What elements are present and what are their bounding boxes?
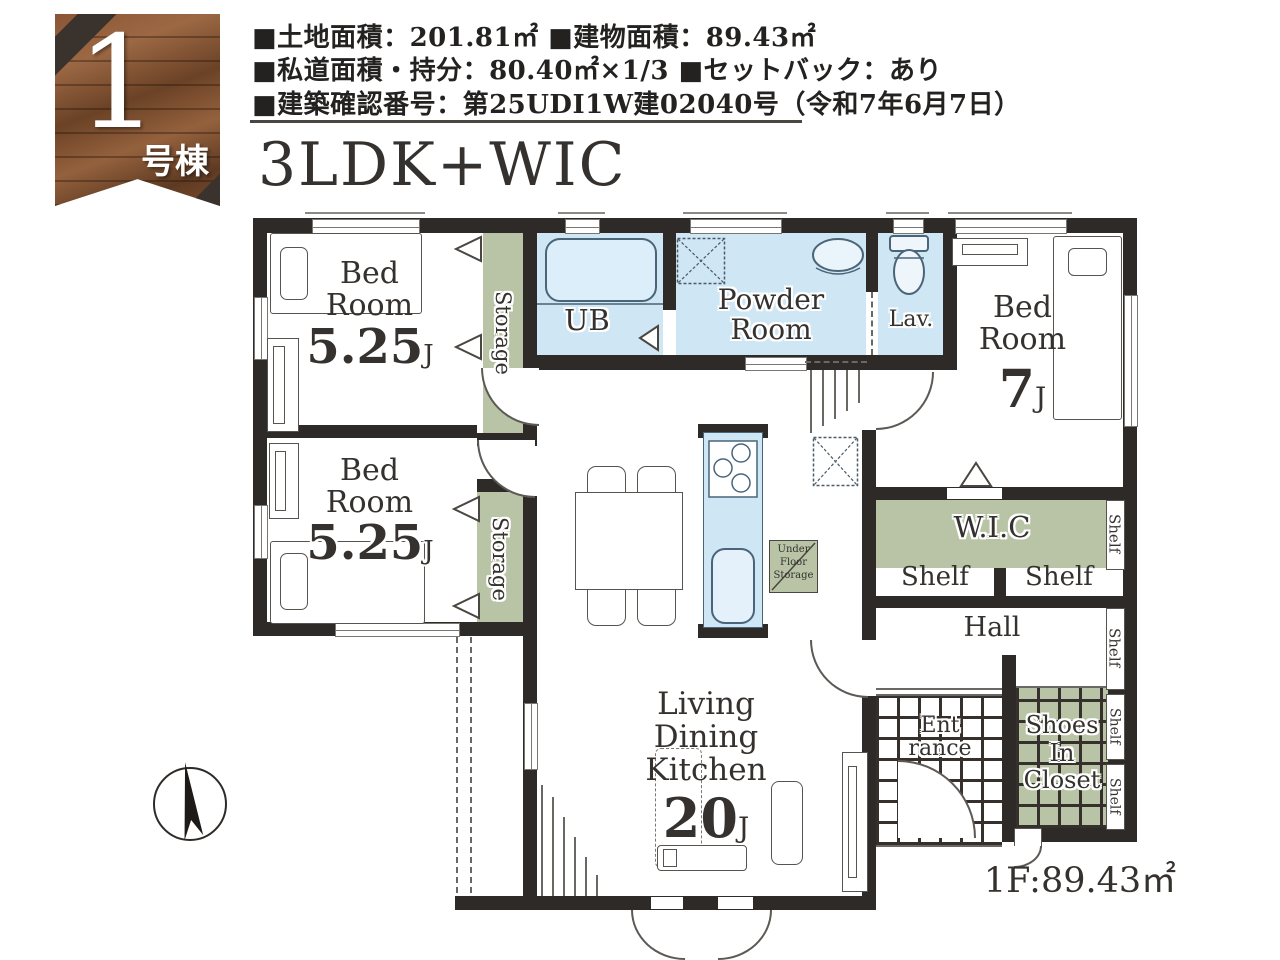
patio-door-arc (718, 910, 772, 960)
pillow (1068, 248, 1107, 276)
counter-shelf-detail (962, 244, 1018, 255)
confirmation-number-line: ■建築確認番号：第25UDI1W建02040号（令和7年6月7日） (252, 89, 1021, 122)
door-swing-arc (810, 640, 868, 698)
label-line: Closet (1020, 767, 1104, 795)
window-sill (305, 212, 425, 214)
room-label-entrance: Ent rance (898, 714, 982, 761)
shelf-label: Shelf (1000, 564, 1118, 592)
label-line: Under (769, 543, 818, 556)
window (254, 505, 268, 559)
room-label-bedroom2: Bed Room (322, 455, 417, 519)
room-label-hall: Hall (948, 614, 1036, 643)
kitchen-sink (711, 548, 755, 624)
window (565, 219, 600, 234)
label-line: rance (898, 737, 982, 760)
patio-door-arc (631, 910, 685, 960)
hatch-line (585, 857, 587, 896)
bathtub (545, 238, 657, 302)
door-swing-arc (876, 372, 934, 430)
window (335, 623, 460, 637)
room-size: 5.25 (306, 515, 423, 571)
room-size-ldk: 20J (630, 790, 782, 847)
hatch-line (552, 797, 554, 896)
room-label-ldk: Living Dining Kitchen (630, 688, 782, 787)
hatch-line (822, 370, 824, 426)
room-size: 20 (663, 786, 738, 850)
door-opening (947, 488, 1002, 499)
hatch-line (846, 370, 848, 411)
window-sill (948, 212, 1072, 214)
sliding-door-track (871, 292, 873, 355)
hatch-line (563, 817, 565, 896)
door-opening (718, 897, 753, 909)
desk-detail (275, 451, 286, 511)
sliding-door (745, 357, 807, 371)
unit-number-badge: 1 号棟 (55, 14, 220, 206)
room-size-unit: J (423, 536, 433, 566)
closet-edge-line (1016, 686, 1108, 688)
bench-detail (663, 849, 677, 867)
label-line: Floor (769, 556, 818, 569)
room-label-shoes-closet: Shoes In Closet (1020, 712, 1104, 795)
hatch-line (596, 875, 598, 896)
sliding-door-track (805, 361, 867, 363)
header-underline (250, 120, 802, 123)
room-size-unit: J (423, 340, 433, 370)
road-area-line: ■私道面積・持分：80.40㎡×1/3 ■セットバック：あり (252, 55, 1021, 88)
room-label-bedroom3: Bed Room (975, 292, 1070, 356)
entrance-step-line (876, 688, 1002, 690)
room-size: 5.25 (306, 319, 423, 375)
room-label-ub: UB (557, 305, 617, 336)
folding-door-icon (638, 324, 660, 352)
room-label-storage2: Storage (477, 500, 523, 618)
room-size-unit: J (1035, 381, 1046, 414)
hatch-line (834, 370, 836, 419)
badge-number: 1 (77, 20, 158, 148)
setback-line (456, 637, 458, 893)
shelf-label: Shelf (876, 564, 994, 592)
window-sill (683, 212, 787, 214)
room-size-bedroom1: 5.25J (280, 322, 460, 373)
room-size-bedroom3: 7J (975, 362, 1070, 417)
hatch-line (574, 837, 576, 896)
refrigerator-space-icon (812, 436, 859, 487)
room-label-bedroom1: Bed Room (322, 258, 417, 322)
room-label-powder-room: Powder Room (691, 285, 851, 344)
setback-line (470, 637, 472, 893)
property-info: ■土地面積：201.81㎡ ■建物面積：89.43㎡ ■私道面積・持分：80.4… (252, 22, 1021, 122)
room-size-bedroom2: 5.25J (280, 518, 460, 569)
room-label-storage1: Storage (483, 248, 523, 418)
room-label-wic: W.I.C (938, 512, 1046, 543)
layout-title: 3LDK+WIC (258, 130, 627, 200)
window (254, 297, 268, 360)
hatch-line (810, 370, 812, 433)
floor-plan-page: 1 号棟 ■土地面積：201.81㎡ ■建物面積：89.43㎡ ■私道面積・持分… (0, 0, 1280, 960)
window (524, 703, 538, 770)
room-size: 7 (999, 359, 1035, 420)
window (1124, 295, 1138, 427)
wall-segment (523, 218, 537, 368)
shelf-label: Shelf (1106, 608, 1123, 688)
wall-segment (876, 487, 1137, 500)
window-sill (558, 212, 605, 214)
porch-edge-line (876, 845, 1002, 847)
wall-segment (663, 232, 676, 310)
room-size-unit: J (738, 811, 749, 844)
label-line: Ent (898, 714, 982, 737)
label-line: In (1020, 740, 1104, 768)
compass-icon (150, 754, 230, 858)
pillow (280, 247, 308, 300)
badge-label: 号棟 (141, 134, 209, 183)
window (312, 219, 420, 234)
sink-icon (810, 236, 866, 278)
hatch-line (858, 370, 860, 403)
wall-segment (862, 430, 876, 640)
shelf-label: Shelf (1106, 500, 1123, 568)
window-sill (886, 212, 929, 214)
window (893, 219, 924, 234)
hatch-line (541, 785, 543, 896)
shelf-label: Shelf (1106, 694, 1123, 758)
wall-segment (866, 232, 878, 292)
under-floor-storage-label: Under Floor Storage (769, 543, 818, 582)
room-label-lavatory: Lav. (880, 308, 942, 331)
stove-icon (708, 440, 758, 498)
window (955, 219, 1067, 234)
label-line: Shoes (1020, 712, 1104, 740)
dining-table (575, 492, 683, 590)
entrance-step-line (876, 694, 1002, 696)
entry-step (1014, 828, 1042, 848)
door-opening (651, 897, 683, 909)
wall-segment (876, 596, 1137, 608)
shelf-label: Shelf (1106, 764, 1123, 828)
folding-door-icon (958, 460, 994, 488)
wall-segment (523, 496, 537, 896)
washing-machine-icon (676, 237, 726, 285)
floor-area-label: 1F:89.43㎡ (960, 852, 1200, 903)
wall-segment (1002, 655, 1016, 828)
window (690, 219, 782, 234)
toilet-icon (886, 234, 932, 300)
tv-board-detail (848, 766, 857, 878)
wall-segment (523, 424, 537, 440)
folding-door-icon (453, 235, 483, 263)
label-line: Storage (769, 569, 818, 582)
land-area-line: ■土地面積：201.81㎡ ■建物面積：89.43㎡ (252, 22, 1021, 55)
